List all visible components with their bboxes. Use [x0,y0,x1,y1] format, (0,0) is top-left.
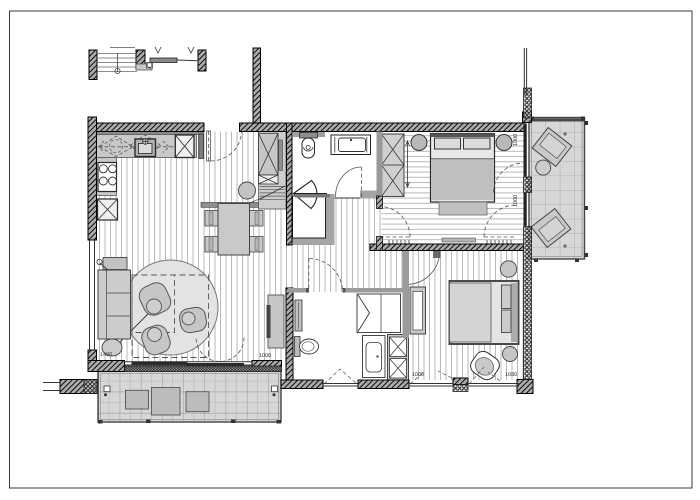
svg-text:1000: 1000 [412,372,424,378]
svg-text:1000: 1000 [259,353,271,359]
svg-text:1000: 1000 [513,134,519,146]
svg-text:1400: 1400 [100,352,112,358]
svg-text:1000: 1000 [513,195,519,207]
svg-text:1080: 1080 [505,372,517,378]
